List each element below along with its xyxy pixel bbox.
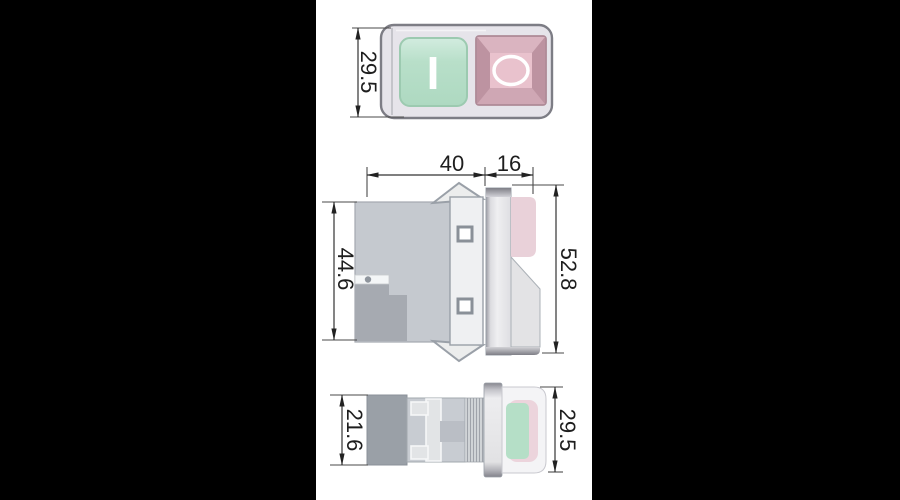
on-button: I — [400, 38, 467, 106]
mounting-hole-top — [458, 227, 472, 241]
dimension-label: 21.6 — [342, 409, 367, 452]
terminal-slot — [355, 275, 389, 284]
housing-bottom-cap — [486, 347, 540, 355]
dimension-drawing: I 29.5 — [0, 0, 900, 500]
dimension-label: 44.6 — [333, 248, 358, 291]
terminal-pin — [365, 276, 371, 282]
housing-band — [486, 188, 511, 355]
fork-center-tab — [440, 421, 465, 442]
housing-top-cap — [486, 188, 511, 197]
on-symbol: I — [427, 47, 440, 99]
off-button — [476, 36, 546, 105]
drawing-stage: I 29.5 — [0, 0, 900, 500]
dimension-label: 29.5 — [555, 409, 580, 452]
bezel-side-wall — [484, 383, 502, 477]
dimension-label: 52.8 — [556, 248, 581, 291]
button-profile-pink — [511, 197, 536, 257]
top-view: I 29.5 — [350, 25, 552, 118]
on-button-edge-green — [506, 403, 529, 459]
mounting-panel — [450, 197, 483, 345]
dimension-label: 40 — [440, 151, 464, 176]
rear-block — [367, 395, 407, 465]
fork-prong-bottom — [411, 446, 428, 459]
mounting-hole-bottom — [458, 299, 472, 313]
dimension-label: 29.5 — [356, 51, 381, 94]
dimension-label: 16 — [497, 151, 521, 176]
fork-prong-top — [411, 402, 428, 415]
ribbed-section — [465, 398, 484, 462]
